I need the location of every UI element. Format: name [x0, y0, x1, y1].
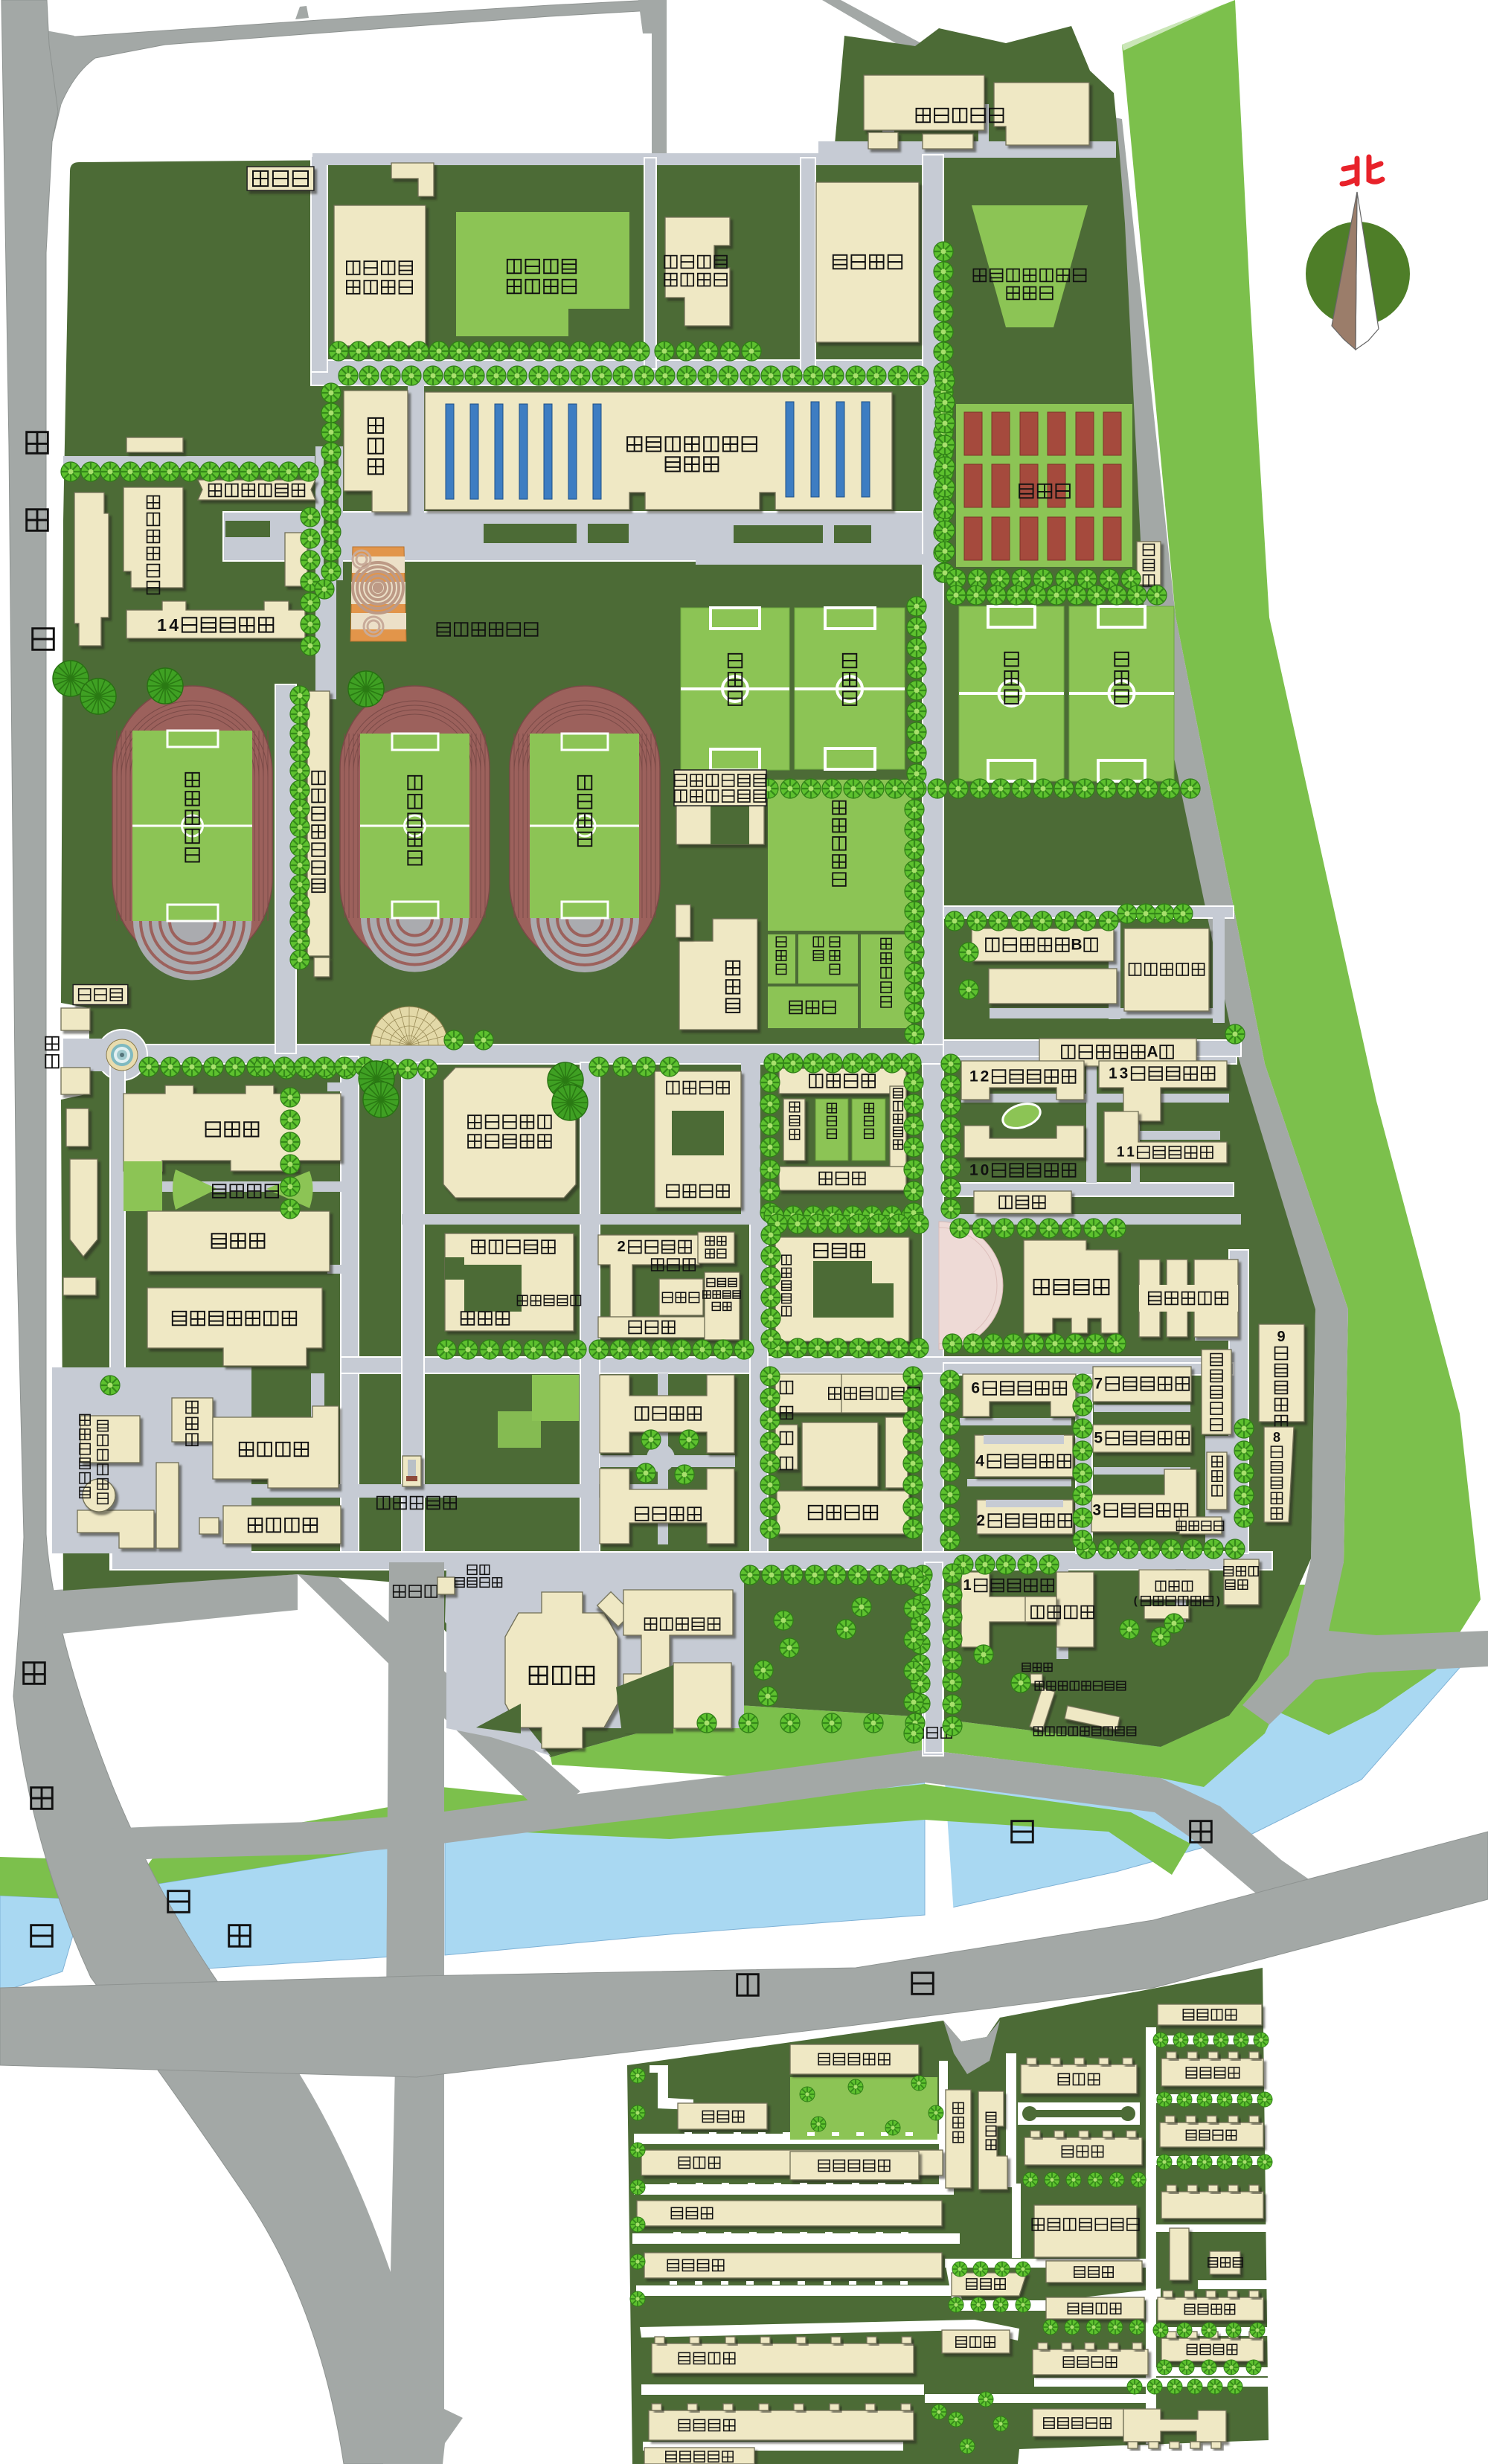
svg-text:9: 9	[1277, 1329, 1285, 1345]
svg-text:3: 3	[1120, 1065, 1129, 1082]
svg-text:8: 8	[1273, 1430, 1280, 1445]
svg-text:3: 3	[1092, 1502, 1101, 1519]
svg-text:1: 1	[1117, 1145, 1125, 1161]
svg-text:1: 1	[157, 615, 167, 635]
svg-text:1: 1	[969, 1068, 978, 1085]
svg-text:1: 1	[1109, 1065, 1117, 1082]
svg-text:5: 5	[1094, 1430, 1103, 1447]
svg-text:1: 1	[963, 1577, 971, 1594]
svg-text:A: A	[1147, 1044, 1158, 1061]
svg-text:4: 4	[169, 615, 179, 635]
svg-text:(: (	[1134, 1595, 1138, 1608]
svg-text:2: 2	[618, 1239, 626, 1255]
svg-text:4: 4	[975, 1453, 984, 1470]
svg-text:6: 6	[971, 1380, 980, 1397]
svg-text:7: 7	[1094, 1376, 1103, 1393]
svg-text:1: 1	[969, 1162, 978, 1179]
svg-text:B: B	[1071, 937, 1082, 954]
svg-text:0: 0	[981, 1162, 990, 1179]
svg-text:): )	[1216, 1595, 1220, 1608]
svg-text:1: 1	[1126, 1145, 1135, 1161]
svg-text:2: 2	[981, 1068, 990, 1085]
svg-text:2: 2	[976, 1512, 985, 1530]
